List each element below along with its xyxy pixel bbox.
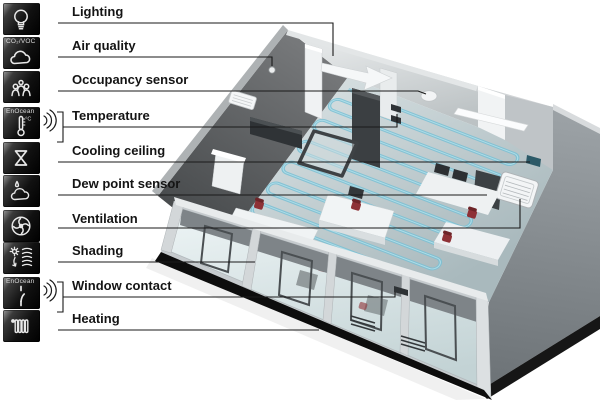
lighting-icon-tile [3,3,40,35]
legend-label-dew-point-sensor: Dew point sensor [72,176,212,192]
air-quality-icon-tile: CO₂/VOC [3,37,40,69]
cooling-icon-tile [3,142,40,174]
window-contact-switch-icon [8,284,34,308]
cooling-hourglass-icon [8,145,34,171]
ventilation-icon-tile [3,210,40,242]
wireless-signal-icon [44,110,56,131]
legend-label-ventilation: Ventilation [72,211,212,227]
lightbulb-icon [8,6,34,32]
legend-label-lighting: Lighting [72,4,212,20]
dew-point-droplet-cloud-icon [8,178,34,204]
room-automation-diagram: CO₂/VOC EnOcean °C [0,0,600,400]
temperature-unit-label: °C [25,117,31,123]
legend-label-temperature: Temperature [72,108,212,124]
dew-point-icon-tile [3,175,40,207]
air-quality-cloud-icon [8,44,34,68]
occupancy-sensor-disc [421,91,437,102]
radiator-icon [8,313,34,339]
window-contact-icon-tile: EnOcean [3,277,40,309]
temperature-bracket [57,112,63,142]
sun-blinds-icon [8,245,34,271]
air-quality-sensor [269,67,275,73]
legend-label-occupancy-sensor: Occupancy sensor [72,72,212,88]
thermometer-icon: °C [8,114,34,138]
legend-label-window-contact: Window contact [72,278,212,294]
heating-icon-tile [3,310,40,342]
temperature-icon-tile: EnOcean °C [3,107,40,139]
dark-cabinet [352,88,380,168]
shading-icon-tile [3,242,40,274]
legend-label-air-quality: Air quality [72,38,212,54]
callout-line-air-quality [58,57,272,66]
wireless-signal-icon [44,280,56,301]
legend-label-cooling-ceiling: Cooling ceiling [72,143,212,159]
legend-label-shading: Shading [72,243,212,259]
fan-icon [8,213,34,239]
room-illustration [0,0,600,400]
partition-slab-left [305,44,322,119]
legend-label-heating: Heating [72,311,212,327]
occupancy-icon-tile [3,71,40,103]
occupancy-people-icon [8,74,34,100]
window-contact-bracket [57,282,63,312]
